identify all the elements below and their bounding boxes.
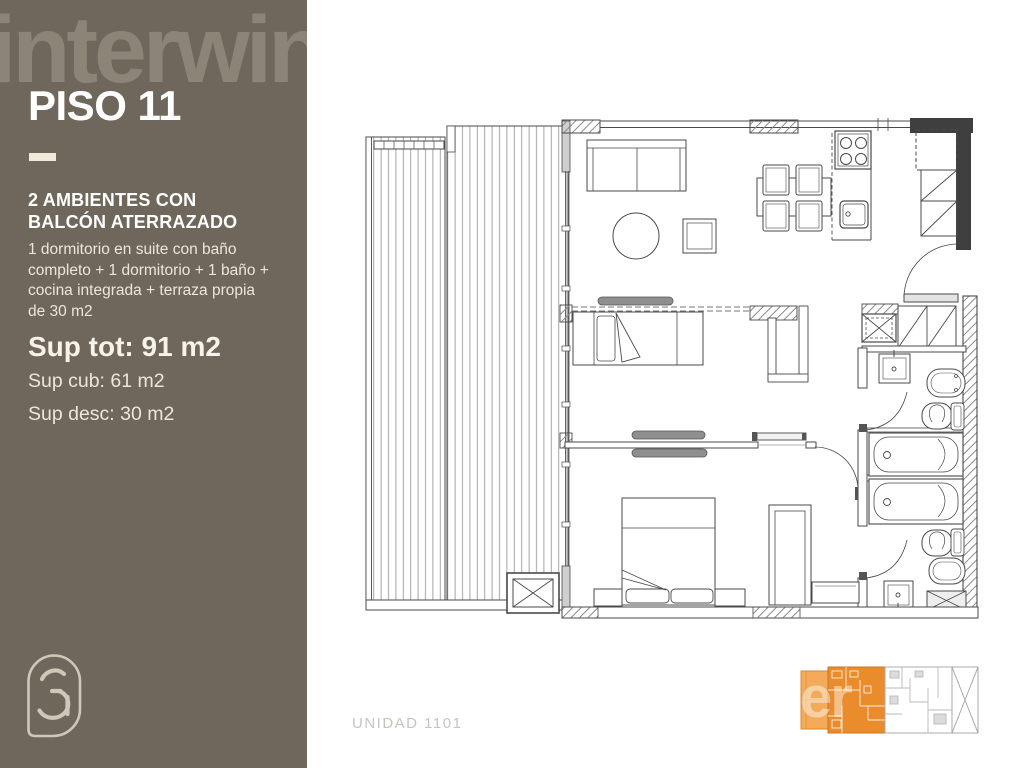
closet-column (769, 505, 811, 605)
nightstand-right (715, 589, 745, 606)
washbasin-bottom (884, 581, 913, 610)
dining-set (757, 165, 831, 231)
wardrobe-nook (750, 306, 808, 382)
key-plan-unit-highlight (828, 667, 885, 733)
round-table (613, 213, 659, 259)
entry-vestibule (862, 130, 957, 348)
sofa (587, 140, 686, 191)
key-plan-terrace (801, 671, 828, 729)
column (560, 305, 572, 322)
unit-description: 1 dormitorio en suite con baño completo … (28, 240, 276, 322)
vanity-sink-bottom (929, 558, 965, 584)
master-bedroom-door (815, 447, 862, 500)
bidet-top (951, 403, 964, 430)
bathrooms (858, 346, 966, 610)
terrace-balcony (366, 126, 568, 613)
bedroom-master (594, 498, 859, 606)
interior-walls (565, 432, 862, 500)
floor-title: PISO 11 (28, 82, 181, 130)
bathroom-door-bottom (859, 540, 907, 580)
lintel (562, 120, 600, 133)
stove (835, 131, 871, 169)
dresser (812, 582, 859, 603)
3a-monogram-icon (26, 653, 82, 739)
toilet-bottom (922, 529, 964, 556)
unit-label: UNIDAD 1101 (352, 715, 462, 732)
surface-total: Sup tot: 91 m2 (28, 331, 221, 363)
floor-plan (355, 105, 995, 633)
pocket-door (752, 432, 806, 441)
entry-closet (916, 130, 957, 236)
projection-line (572, 307, 750, 311)
balcony-rail (374, 141, 444, 149)
single-bed (573, 312, 703, 365)
vanity-sink-top (927, 369, 965, 397)
sidebar: interwin PISO 11 2 AMBIENTES CON BALCÓN … (0, 0, 307, 768)
side-table (683, 219, 716, 253)
lintel (750, 120, 798, 133)
bathtub-1 (869, 433, 963, 476)
page: { "sidebar": { "brand": "interwin", "flo… (0, 0, 1024, 768)
living-room (572, 140, 750, 311)
bedroom-middle (573, 306, 808, 382)
surface-uncovered: Sup desc: 30 m2 (28, 403, 174, 426)
terrace-skylight (507, 573, 559, 613)
key-plan-neighbor-unit (885, 667, 952, 733)
unit-type-heading: 2 AMBIENTES CON BALCÓN ATERRAZADO (28, 190, 253, 234)
bathtub-2 (869, 479, 963, 524)
double-bed (622, 498, 715, 605)
key-plan-core (952, 667, 978, 733)
entry-door (904, 244, 958, 302)
kitchen (832, 131, 871, 240)
washbasin-top (879, 350, 910, 383)
kitchen-sink (840, 201, 868, 228)
key-plan-thumbnail (798, 658, 982, 740)
bottom-wall (562, 607, 978, 618)
accent-dash (29, 153, 56, 161)
nightstand-left (594, 589, 622, 606)
bathroom-door-top (859, 392, 907, 432)
hall-cabinets (898, 306, 956, 348)
shaft (862, 314, 896, 342)
surface-covered: Sup cub: 61 m2 (28, 370, 165, 393)
bidet-bottom (951, 529, 964, 556)
toilet-top (922, 403, 964, 430)
